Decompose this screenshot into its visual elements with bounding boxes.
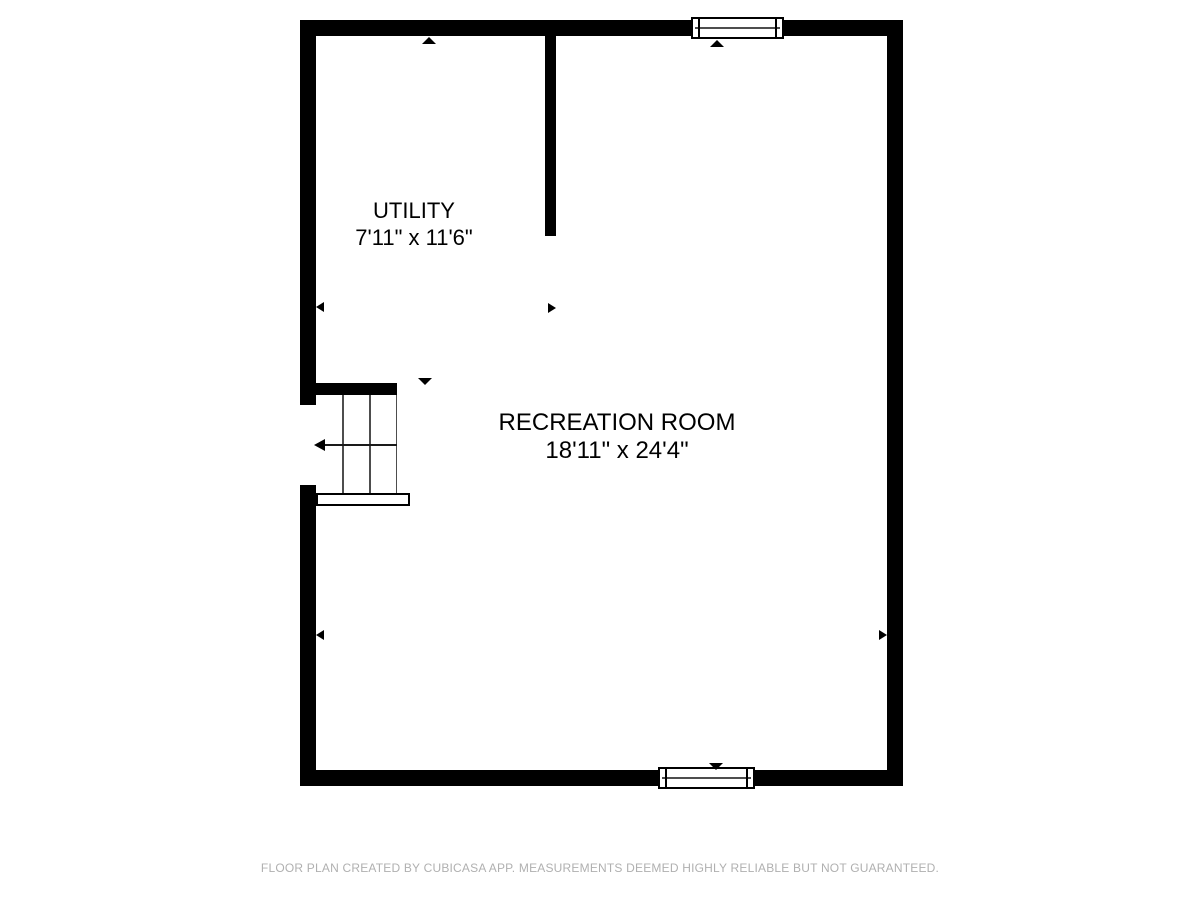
room-dimensions: 18'11" x 24'4" <box>467 437 767 465</box>
window-frame-divider-right <box>746 769 748 787</box>
marker-arrow-right-wall-icon <box>879 630 887 640</box>
room-dimensions: 7'11" x 11'6" <box>304 224 524 251</box>
wall-left-lower-segment <box>300 485 316 786</box>
window-frame-divider-left <box>698 19 700 37</box>
marker-arrow-down-bottom-window-icon <box>709 763 723 770</box>
marker-arrow-down-stub-icon <box>418 378 432 385</box>
wall-stair-stub <box>316 383 397 395</box>
wall-top-right-segment <box>784 20 903 36</box>
room-name: RECREATION ROOM <box>467 409 767 437</box>
window-sash-line <box>662 777 751 779</box>
marker-arrow-up-top-wall-icon <box>422 37 436 44</box>
marker-arrow-left-wall-upper-icon <box>316 302 324 312</box>
marker-arrow-right-utility-icon <box>548 303 556 313</box>
wall-bottom-left-segment <box>300 770 658 786</box>
wall-top-left-segment <box>300 20 691 36</box>
floor-plan: UTILITY 7'11" x 11'6" RECREATION ROOM 18… <box>0 0 1200 900</box>
window-frame-divider-left <box>665 769 667 787</box>
wall-right <box>887 20 903 786</box>
stair-walkline <box>316 444 397 446</box>
stair-landing <box>316 493 410 506</box>
marker-arrow-up-top-window-icon <box>710 40 724 47</box>
wall-utility-divider <box>545 36 556 236</box>
wall-bottom-right-segment <box>755 770 903 786</box>
window-top <box>691 17 784 39</box>
window-frame-divider-right <box>775 19 777 37</box>
marker-arrow-left-wall-lower-icon <box>316 630 324 640</box>
footer-disclaimer: FLOOR PLAN CREATED BY CUBICASA APP. MEAS… <box>0 861 1200 875</box>
window-sash-line <box>695 27 780 29</box>
room-label-recreation: RECREATION ROOM 18'11" x 24'4" <box>467 409 767 465</box>
room-label-utility: UTILITY 7'11" x 11'6" <box>304 197 524 251</box>
room-name: UTILITY <box>304 197 524 224</box>
window-bottom <box>658 767 755 789</box>
stair-direction-arrow-icon <box>314 439 325 451</box>
